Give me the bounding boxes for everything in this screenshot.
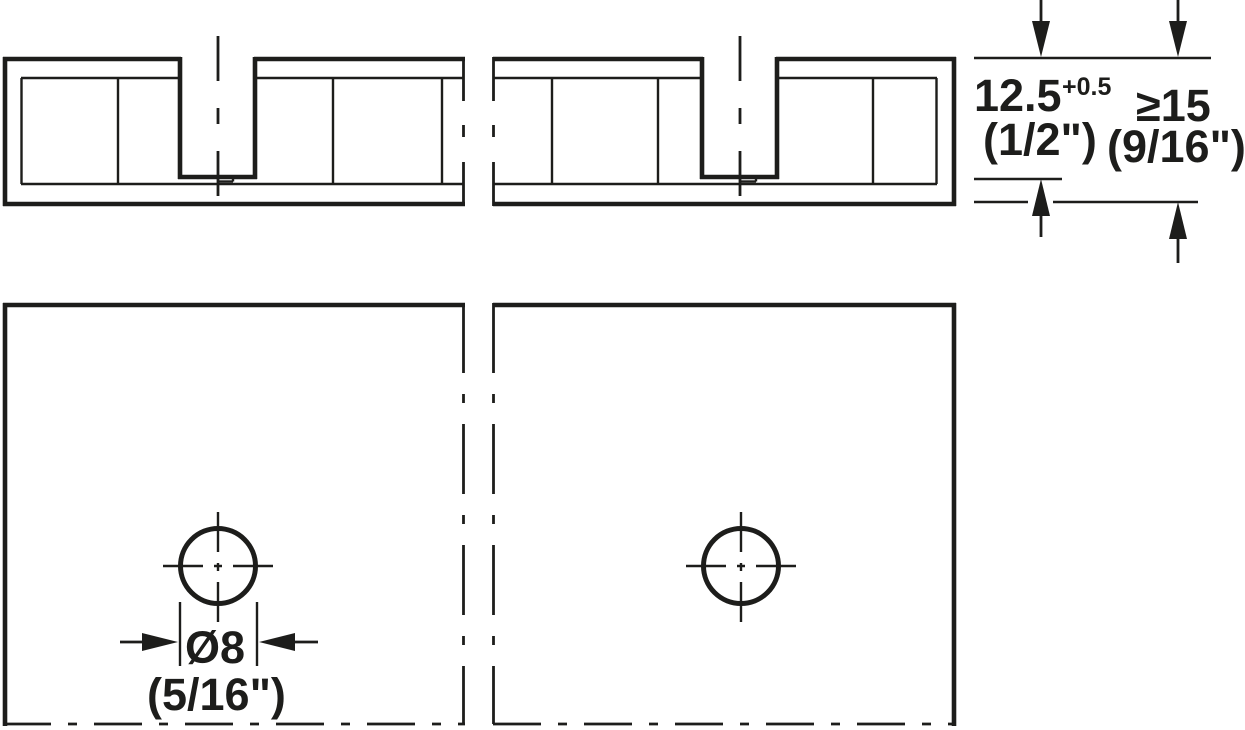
panel-right-section (493, 36, 956, 206)
arrow-down-icon (1032, 21, 1050, 57)
arrow-left-icon (259, 633, 295, 651)
diameter-metric-value: Ø8 (185, 622, 245, 673)
dimension-depth-label: 12.5 +0.5 (1/2") (974, 70, 1111, 165)
panel-left-section (3, 36, 465, 206)
arrow-right-icon (142, 633, 178, 651)
depth-tolerance-value: +0.5 (1062, 73, 1111, 101)
drilling-diagram: 12.5 +0.5 (1/2") ≥15 (9/16") (0, 0, 1245, 730)
diameter-imperial-value: (5/16") (147, 669, 286, 720)
technical-drawing-page: 12.5 +0.5 (1/2") ≥15 (9/16") (0, 0, 1245, 730)
panel-right-plan (493, 303, 956, 726)
arrow-up-icon (1169, 202, 1187, 239)
arrow-down-icon (1169, 21, 1187, 57)
plan-view: Ø8 (5/16") (3, 303, 956, 726)
dimension-annotations: 12.5 +0.5 (1/2") ≥15 (9/16") (974, 0, 1245, 263)
arrow-up-icon (1032, 179, 1050, 216)
dimension-thickness-label: ≥15 (9/16") (1107, 80, 1245, 172)
depth-imperial-value: (1/2") (983, 114, 1097, 165)
thickness-imperial-value: (9/16") (1107, 121, 1245, 172)
cross-section-view (3, 36, 956, 206)
